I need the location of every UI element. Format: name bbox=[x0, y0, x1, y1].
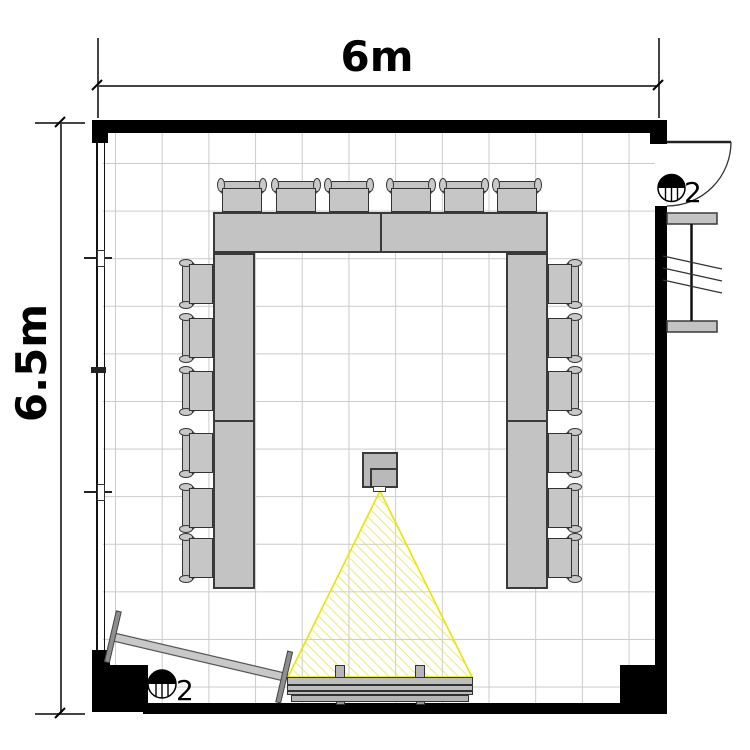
projection-beam bbox=[288, 491, 472, 677]
screen-base bbox=[291, 695, 469, 702]
projector-lens bbox=[373, 486, 386, 492]
screen-board bbox=[287, 677, 473, 691]
chair bbox=[548, 366, 582, 416]
chair bbox=[324, 178, 374, 212]
chair bbox=[179, 533, 213, 583]
table-seam bbox=[506, 420, 548, 422]
table-seam bbox=[213, 420, 255, 422]
table-seam bbox=[380, 212, 382, 253]
chair bbox=[179, 428, 213, 478]
chair bbox=[439, 178, 489, 212]
chair bbox=[271, 178, 321, 212]
chair bbox=[548, 313, 582, 363]
fixture-symbol-corner bbox=[148, 670, 176, 698]
chair bbox=[179, 259, 213, 309]
projector bbox=[362, 452, 398, 488]
projector-lens-box bbox=[370, 468, 398, 488]
chair bbox=[548, 259, 582, 309]
floor-plan: 6m 6.5m bbox=[0, 0, 750, 750]
leaning-whiteboard bbox=[104, 611, 292, 703]
radiator-cap-top bbox=[667, 213, 717, 224]
chair bbox=[179, 483, 213, 533]
chair bbox=[492, 178, 542, 212]
plan-overlay bbox=[0, 0, 750, 750]
chair bbox=[548, 533, 582, 583]
chair bbox=[179, 366, 213, 416]
fixture-label-door: 2 bbox=[684, 176, 702, 209]
chair bbox=[179, 313, 213, 363]
screen-foot bbox=[416, 701, 425, 705]
chair bbox=[217, 178, 267, 212]
chair bbox=[548, 483, 582, 533]
radiator-cap-bottom bbox=[667, 321, 717, 332]
fixture-symbol-door bbox=[658, 175, 685, 202]
chair bbox=[386, 178, 436, 212]
screen-foot bbox=[336, 701, 345, 705]
chair bbox=[548, 428, 582, 478]
fixture-label-corner: 2 bbox=[176, 674, 194, 707]
